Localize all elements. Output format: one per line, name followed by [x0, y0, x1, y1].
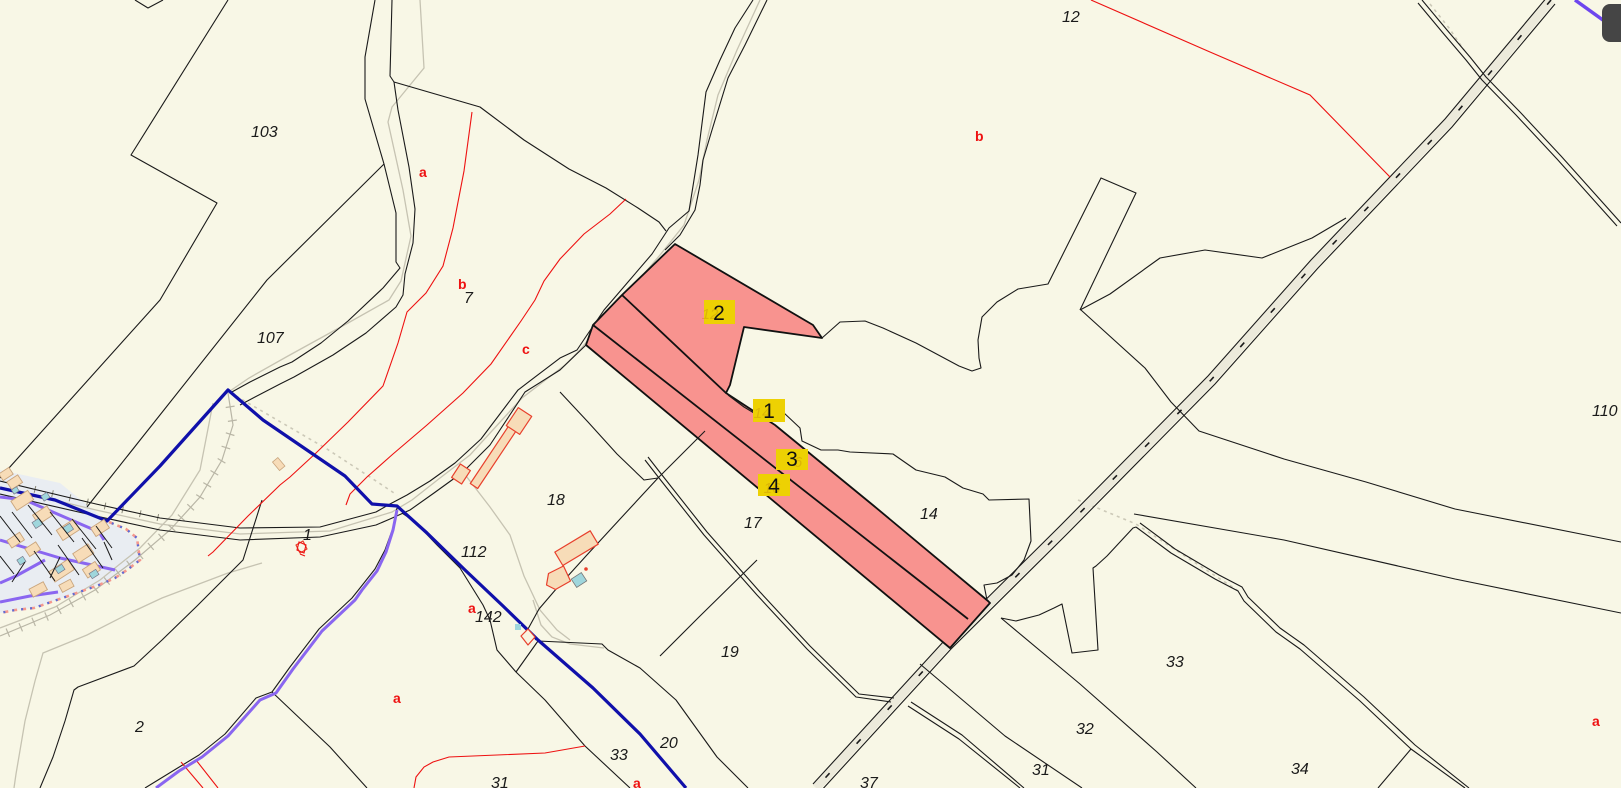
svg-text:37: 37 — [860, 775, 879, 788]
svg-text:1: 1 — [763, 400, 775, 423]
svg-text:1: 1 — [303, 527, 312, 544]
svg-text:c: c — [522, 341, 530, 357]
svg-text:18: 18 — [547, 492, 565, 509]
svg-text:b: b — [458, 276, 467, 292]
svg-text:31: 31 — [1032, 762, 1050, 779]
svg-text:33: 33 — [1166, 654, 1184, 671]
svg-text:a: a — [393, 690, 401, 706]
svg-text:34: 34 — [1291, 761, 1309, 778]
svg-text:7: 7 — [464, 290, 474, 307]
svg-text:110: 110 — [1592, 403, 1618, 420]
svg-text:2: 2 — [713, 302, 725, 325]
svg-text:33: 33 — [610, 747, 628, 764]
svg-text:112: 112 — [461, 544, 487, 561]
svg-text:a: a — [419, 164, 427, 180]
svg-text:31: 31 — [491, 775, 509, 788]
svg-text:142: 142 — [475, 609, 502, 626]
svg-text:4: 4 — [768, 475, 780, 498]
svg-text:a: a — [1592, 713, 1600, 729]
svg-text:12: 12 — [1062, 9, 1080, 26]
svg-text:20: 20 — [659, 735, 678, 752]
svg-text:19: 19 — [721, 644, 739, 661]
svg-text:a: a — [468, 600, 476, 616]
svg-text:3: 3 — [786, 448, 798, 471]
svg-text:32: 32 — [1076, 721, 1094, 738]
svg-text:107: 107 — [257, 330, 285, 347]
svg-text:103: 103 — [251, 124, 278, 141]
svg-text:b: b — [975, 128, 984, 144]
svg-text:2: 2 — [134, 719, 144, 736]
svg-text:a: a — [633, 775, 641, 788]
svg-text:14: 14 — [920, 506, 938, 523]
svg-text:17: 17 — [744, 515, 763, 532]
